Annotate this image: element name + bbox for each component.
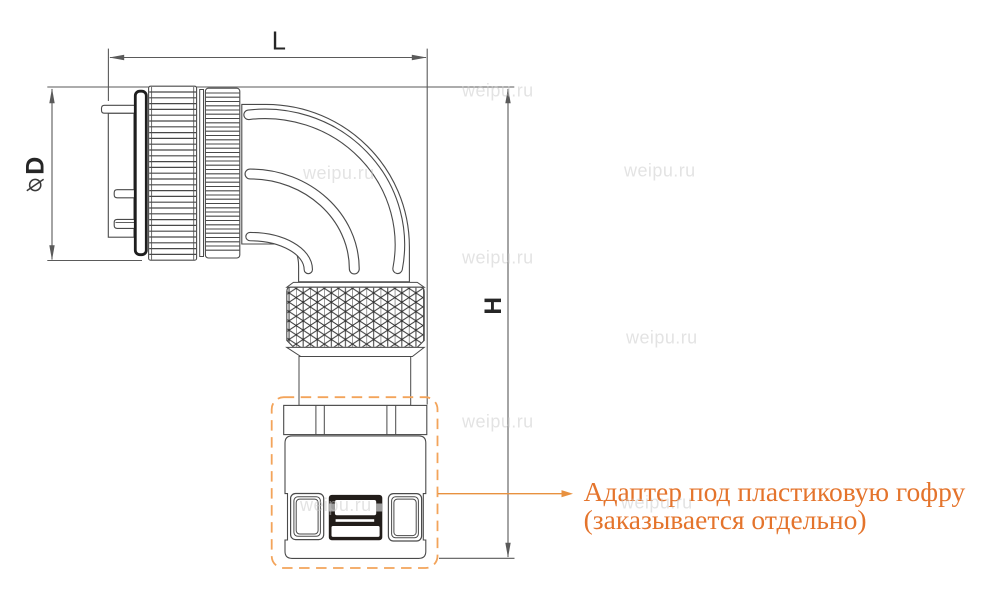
- svg-text:weipu.ru: weipu.ru: [461, 81, 534, 101]
- svg-text:D: D: [22, 157, 50, 175]
- svg-text:weipu.ru: weipu.ru: [620, 493, 693, 513]
- svg-text:weipu.ru: weipu.ru: [299, 495, 372, 515]
- svg-text:weipu.ru: weipu.ru: [461, 248, 534, 268]
- svg-text:L: L: [272, 27, 286, 55]
- svg-text:weipu.ru: weipu.ru: [302, 163, 375, 183]
- svg-text:weipu.ru: weipu.ru: [461, 412, 534, 432]
- svg-text:H: H: [480, 297, 507, 315]
- svg-text:weipu.ru: weipu.ru: [623, 161, 696, 181]
- svg-text:weipu.ru: weipu.ru: [625, 328, 698, 348]
